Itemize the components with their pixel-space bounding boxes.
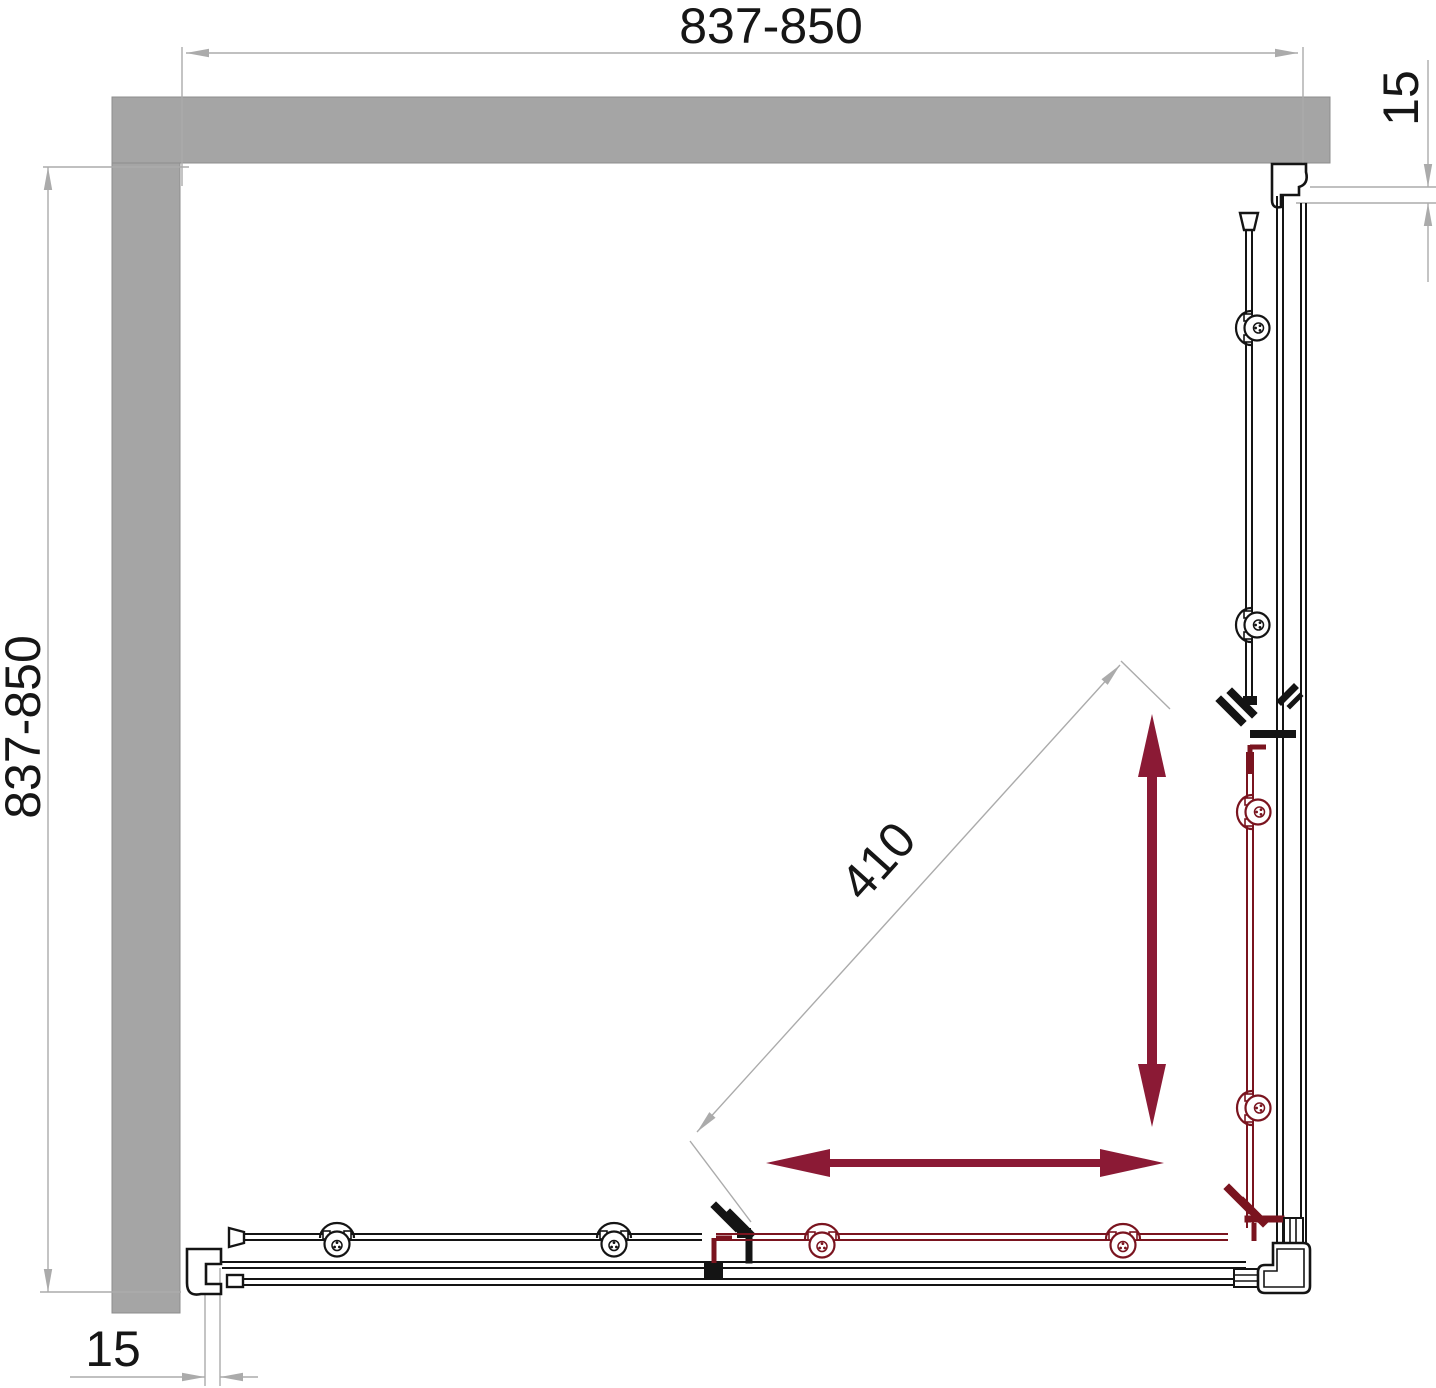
fixed-glass-right (1277, 196, 1283, 1243)
outer-rail-right (1301, 203, 1306, 1248)
dimension-lines (40, 47, 1436, 1386)
dim-label-left-depth: 837-850 (0, 635, 48, 819)
corner-connector-horizontal (1234, 1269, 1258, 1287)
sliding-door-right-black (1236, 213, 1270, 698)
diagram-canvas (0, 0, 1436, 1388)
junction-right (1221, 688, 1300, 774)
roller (1106, 1224, 1140, 1258)
fixed-glass-bottom (222, 1262, 1246, 1268)
roller (1236, 608, 1270, 642)
roller (1237, 1091, 1271, 1125)
stopper-bracket (1290, 696, 1300, 706)
sliding-door-bottom-red (716, 1224, 1228, 1258)
rail-end-cap (227, 1275, 243, 1287)
walls (112, 97, 1330, 1313)
dim-line-diagonal (697, 665, 1120, 1132)
door-end-cap (229, 1228, 244, 1247)
door-glass (243, 1234, 702, 1240)
outer-rail-bottom (243, 1279, 1258, 1285)
sliding-door-bottom-black (229, 1223, 702, 1257)
slide-direction-arrow-horizontal-icon (766, 1149, 1164, 1177)
dim-label-right-gap: 15 (1376, 70, 1426, 126)
dim-label-top-width: 837-850 (679, 1, 863, 51)
dim-label-bottom-gap: 15 (85, 1324, 141, 1374)
wall-left (112, 163, 180, 1313)
sliding-door-right-red (1237, 752, 1271, 1228)
stopper-bracket (704, 1262, 723, 1279)
dim-ext-diag-upper (1121, 661, 1170, 709)
roller (1237, 795, 1271, 829)
wall-profile-bottom-left (187, 1249, 221, 1295)
slide-arrows (766, 714, 1166, 1177)
slide-direction-arrow-vertical-icon (1138, 714, 1166, 1127)
wall-top (112, 97, 1330, 163)
roller (320, 1223, 354, 1257)
roller (1236, 311, 1270, 345)
corner-post (1258, 1243, 1310, 1293)
corner-connector-vertical (1284, 1218, 1303, 1243)
roller (805, 1224, 839, 1258)
corner-assembly (1229, 1189, 1310, 1293)
shower-enclosure-diagram: 837-850 837-850 15 15 410 (0, 0, 1436, 1388)
door-glass (716, 1234, 1228, 1240)
red-bracket (714, 1238, 732, 1263)
door-end-cap (1240, 213, 1258, 230)
roller (597, 1223, 631, 1257)
